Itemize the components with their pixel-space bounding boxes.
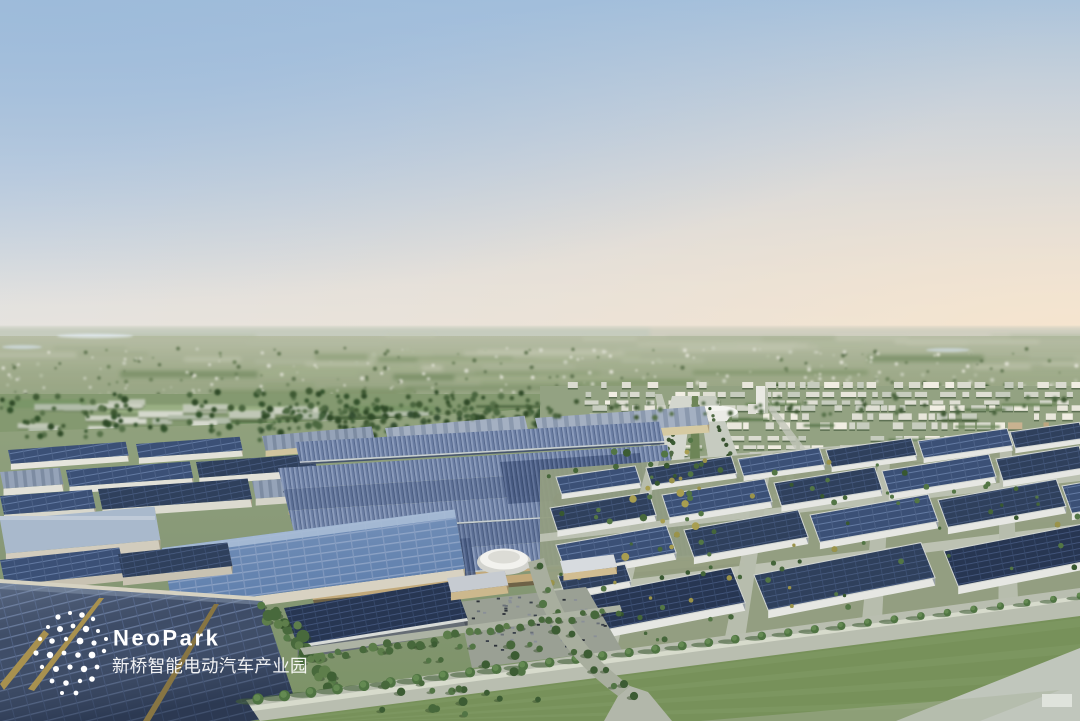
svg-text:NeoPark: NeoPark bbox=[113, 626, 220, 651]
svg-text:新桥智能电动汽车产业园: 新桥智能电动汽车产业园 bbox=[112, 656, 308, 676]
